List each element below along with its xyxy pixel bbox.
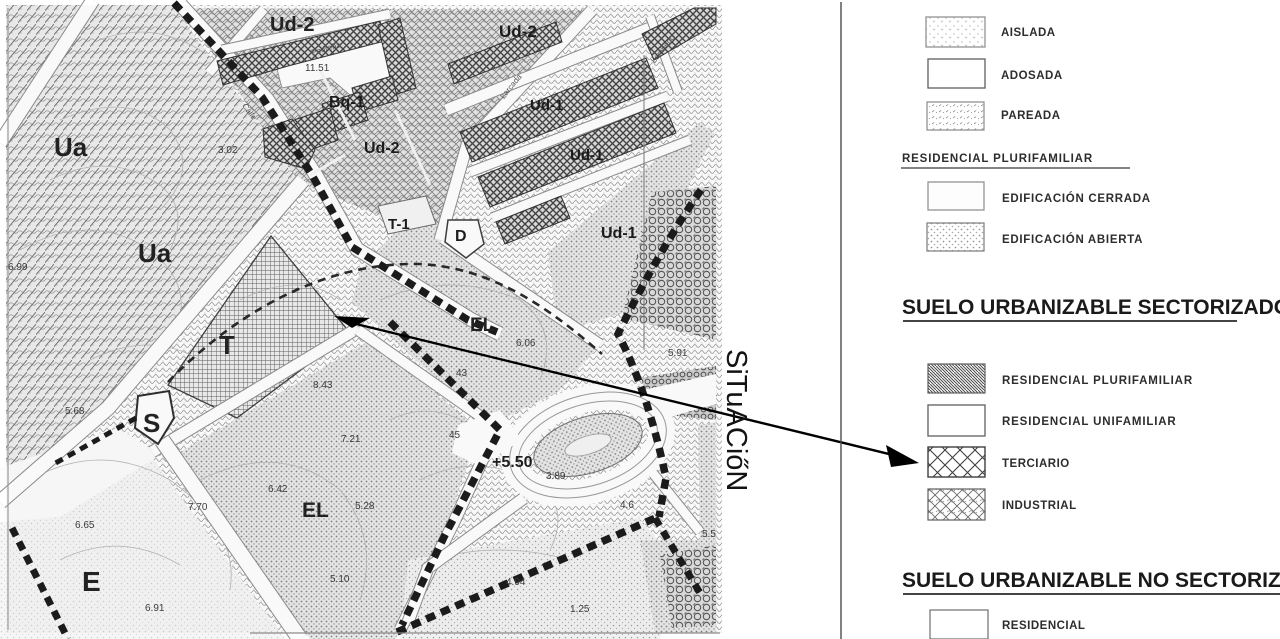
svg-text:+5.50: +5.50 (492, 454, 533, 471)
svg-text:T: T (219, 330, 235, 360)
svg-text:4.94: 4.94 (506, 577, 526, 588)
svg-text:8.43: 8.43 (313, 380, 333, 391)
svg-text:ADOSADA: ADOSADA (1001, 70, 1063, 82)
svg-text:5.28: 5.28 (355, 501, 375, 512)
svg-text:EDIFICACIÓN ABIERTA: EDIFICACIÓN ABIERTA (1002, 233, 1143, 246)
svg-text:Ud-1: Ud-1 (570, 147, 603, 164)
svg-text:RESIDENCIAL UNIFAMILIAR: RESIDENCIAL UNIFAMILIAR (1002, 416, 1177, 428)
svg-text:RESIDENCIAL: RESIDENCIAL (1002, 620, 1085, 632)
svg-text:Ua: Ua (138, 238, 172, 268)
svg-text:Bq-1: Bq-1 (329, 94, 365, 111)
svg-text:Ud-1: Ud-1 (530, 97, 563, 114)
svg-text:6.99: 6.99 (8, 262, 28, 273)
svg-text:EL: EL (470, 315, 495, 336)
svg-text:PAREADA: PAREADA (1001, 110, 1061, 122)
svg-text:EL: EL (302, 499, 329, 522)
svg-text:6.06: 6.06 (516, 338, 536, 349)
svg-text:INDUSTRIAL: INDUSTRIAL (1002, 500, 1077, 512)
svg-text:7.21: 7.21 (341, 434, 361, 445)
svg-text:Ud-1: Ud-1 (601, 225, 637, 242)
svg-text:45: 45 (449, 430, 461, 441)
svg-text:TERCIARIO: TERCIARIO (1002, 458, 1070, 470)
svg-text:Ud-2: Ud-2 (499, 22, 537, 41)
svg-text:6.65: 6.65 (75, 520, 95, 531)
svg-text:4.6: 4.6 (620, 500, 634, 511)
svg-text:T-1: T-1 (388, 216, 410, 233)
svg-text:S: S (143, 408, 160, 438)
svg-text:RESIDENCIAL PLURIFAMILIAR: RESIDENCIAL PLURIFAMILIAR (1002, 375, 1193, 387)
svg-text:Ua: Ua (54, 132, 88, 162)
svg-text:6.91: 6.91 (145, 603, 165, 614)
svg-text:AISLADA: AISLADA (1001, 27, 1056, 39)
svg-text:EDIFICACIÓN CERRADA: EDIFICACIÓN CERRADA (1002, 192, 1151, 205)
svg-text:Ud-2: Ud-2 (364, 140, 400, 157)
svg-text:11.51: 11.51 (305, 63, 330, 74)
svg-text:43: 43 (456, 368, 468, 379)
svg-text:3.02: 3.02 (218, 145, 238, 156)
svg-text:E: E (82, 566, 101, 597)
svg-text:3.89: 3.89 (546, 471, 566, 482)
svg-text:1.25: 1.25 (570, 604, 590, 615)
svg-text:D: D (455, 228, 467, 245)
svg-text:5.91: 5.91 (668, 348, 688, 359)
svg-text:RESIDENCIAL PLURIFAMILIAR: RESIDENCIAL PLURIFAMILIAR (902, 153, 1093, 165)
svg-text:SUELO URBANIZABLE NO SECTORIZA: SUELO URBANIZABLE NO SECTORIZADO (902, 569, 1280, 592)
svg-text:5.68: 5.68 (65, 406, 85, 417)
svg-text:Ud-2: Ud-2 (270, 14, 314, 36)
svg-text:6.42: 6.42 (268, 484, 288, 495)
svg-text:SUELO URBANIZABLE SECTORIZADO: SUELO URBANIZABLE SECTORIZADO (902, 296, 1280, 319)
svg-text:SiTuACiőN: SiTuACiőN (720, 349, 752, 491)
svg-text:5.10: 5.10 (330, 574, 350, 585)
svg-text:5.5: 5.5 (702, 529, 716, 540)
svg-text:7.70: 7.70 (188, 502, 208, 513)
